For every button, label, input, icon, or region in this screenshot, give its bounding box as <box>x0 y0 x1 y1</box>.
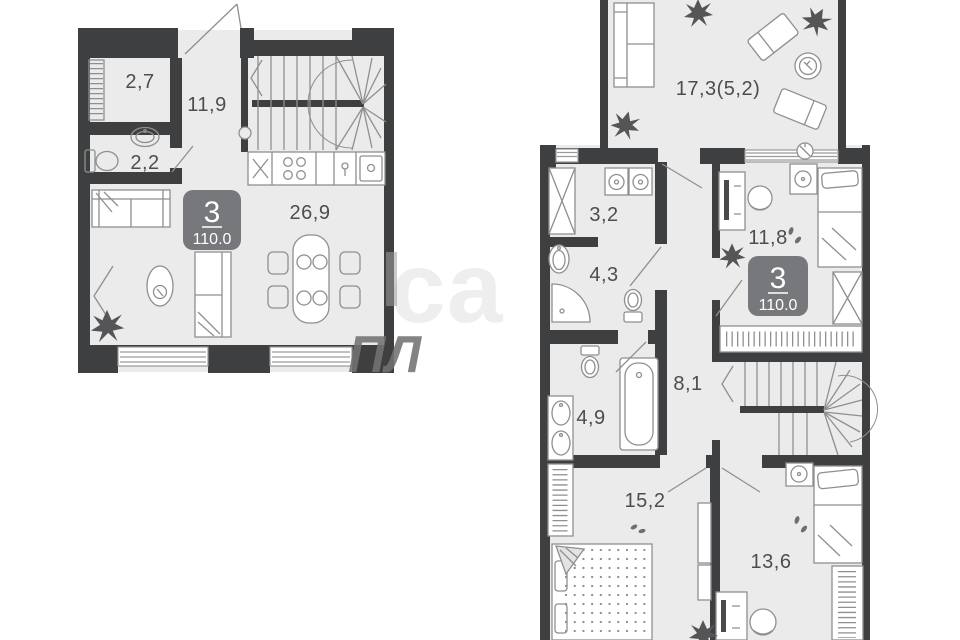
desk-icon <box>719 172 745 230</box>
wardrobe-rail-icon <box>548 464 573 536</box>
couch-icon <box>195 252 231 337</box>
badge-rooms-count: 3 <box>770 262 787 295</box>
newel-post <box>239 127 251 139</box>
nightstand-icon <box>790 164 817 194</box>
wardrobe-rail-icon <box>832 566 863 640</box>
kitchen-counter-icon <box>248 152 385 185</box>
desk-chair-icon <box>748 186 772 210</box>
room-area-label: 4,3 <box>589 264 618 286</box>
badge-total-area: 110.0 <box>759 297 798 314</box>
bed-single-icon <box>814 466 862 563</box>
room-area-label: 3,2 <box>589 204 618 226</box>
room-area-label: 8,1 <box>673 373 702 395</box>
bed-double-icon <box>552 544 652 640</box>
room-area-label: 15,2 <box>625 490 666 512</box>
apartment-badge: 3 110.0 <box>183 190 241 250</box>
apartment-badge: 3 110.0 <box>748 256 808 316</box>
bathtub-icon <box>620 358 658 450</box>
room-area-label: 2,7 <box>125 71 154 93</box>
terrace-sofa-icon <box>614 3 654 87</box>
washer-icon <box>629 168 652 195</box>
sink-icon <box>549 245 569 273</box>
room-area-label: 4,9 <box>576 407 605 429</box>
room-area-label: 26,9 <box>290 202 331 224</box>
room-area-label: 13,6 <box>751 551 792 573</box>
room-area-label: 11,8 <box>748 227 787 249</box>
toilet-icon <box>581 346 599 378</box>
badge-total-area: 110.0 <box>193 231 232 248</box>
first-level-plan: 2,7 11,9 2,2 26,9 3 110.0 <box>78 4 394 373</box>
nightstand-icon <box>786 463 813 486</box>
terrace-table-icon <box>795 53 821 79</box>
second-level-plan: 17,3(5,2) 3,2 11,8 4,3 8,1 4,9 15,2 13,6… <box>540 0 878 640</box>
watermark-fragment <box>386 252 397 306</box>
floorplan-canvas: 2,7 11,9 2,2 26,9 3 110.0 <box>0 0 960 640</box>
side-table-icon <box>147 266 173 306</box>
vent-icon <box>797 143 813 159</box>
badge-rooms-count: 3 <box>204 196 221 229</box>
room-area-label: 17,3(5,2) <box>676 78 761 100</box>
desk-chair-icon <box>750 609 776 635</box>
sofa-icon <box>92 190 170 227</box>
bed-single-icon <box>818 168 862 267</box>
desk-icon <box>716 592 747 640</box>
room-area-label: 2,2 <box>130 152 159 174</box>
wardrobe-rail-icon <box>720 326 862 352</box>
shaft-icon <box>833 272 862 324</box>
tv-unit-icon <box>698 503 711 600</box>
room-area-label: 11,9 <box>187 94 226 116</box>
shaft-icon <box>549 168 575 234</box>
toilet-icon <box>624 290 642 323</box>
double-sink-icon <box>548 396 573 460</box>
washer-icon <box>605 168 628 195</box>
watermark-dark-text: ПЛ <box>348 326 422 384</box>
floorplan-image: 2,7 11,9 2,2 26,9 3 110.0 <box>0 0 960 640</box>
